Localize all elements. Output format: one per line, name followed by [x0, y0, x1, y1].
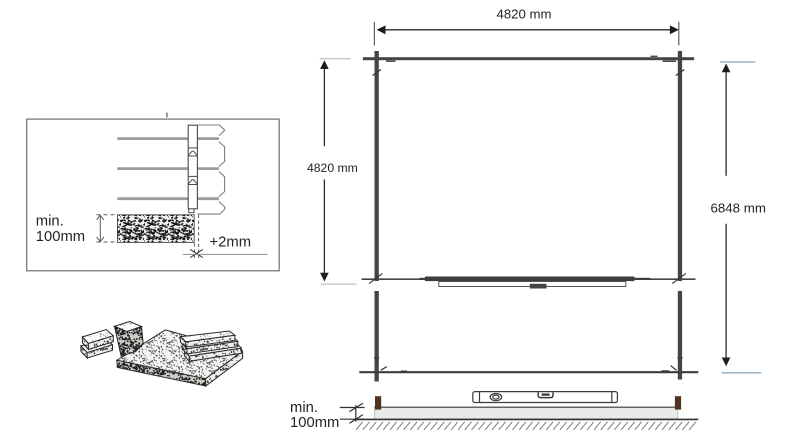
svg-text:100mm: 100mm	[36, 229, 85, 245]
svg-text:4820 mm: 4820 mm	[497, 6, 552, 21]
svg-text:6848 mm: 6848 mm	[711, 201, 766, 216]
svg-text:4820 mm: 4820 mm	[307, 161, 358, 175]
svg-text:min.: min.	[36, 214, 64, 230]
svg-text:min.: min.	[290, 400, 318, 416]
svg-text:+2mm: +2mm	[210, 235, 252, 251]
svg-text:100mm: 100mm	[290, 415, 339, 431]
